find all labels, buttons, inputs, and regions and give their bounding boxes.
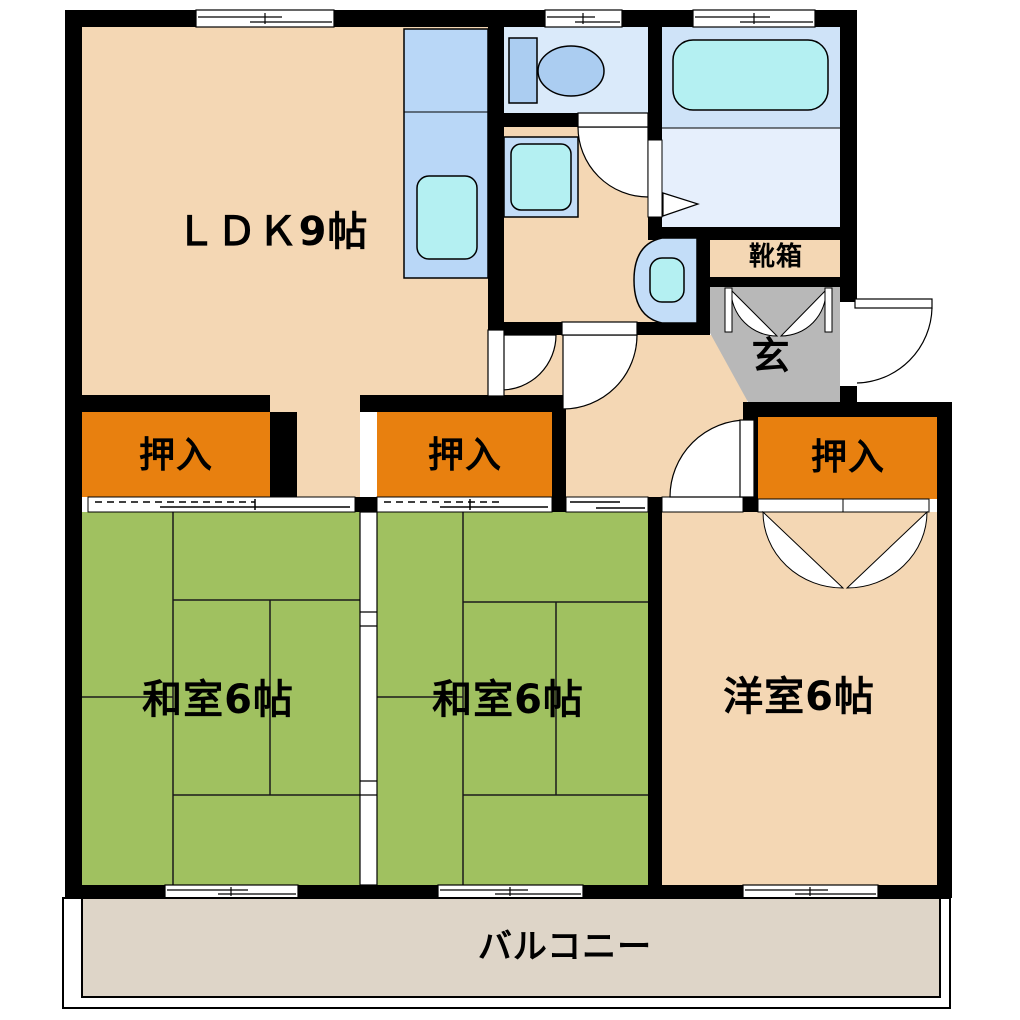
fusuma-below-closet-center (377, 497, 552, 512)
window-washitsu-center-balcony (438, 885, 583, 898)
window-toilet-top (545, 10, 622, 27)
youshitsu-door-opening (662, 497, 743, 512)
genkan-label: 玄 (751, 337, 790, 375)
vanity-icon (504, 137, 578, 217)
sliding-door-hall-to-washitsu (566, 497, 648, 512)
window-bath-top (693, 10, 815, 27)
kitchen-sink-icon (417, 176, 477, 259)
closet-center-label: 押入 (428, 438, 502, 474)
genkan-closet-door-right-panel (825, 288, 832, 332)
washitsu-center-label: 和室6帖 (432, 680, 584, 720)
wall-ldk-bottom-right (360, 395, 566, 412)
youshitsu-label: 洋室6帖 (723, 677, 875, 717)
wall-washroom-bottom-right (637, 322, 710, 335)
bathroom-lower-floor (662, 128, 842, 227)
genkan-closet-door-left-panel (725, 288, 732, 332)
wall-fusuma-top-chunk (355, 497, 377, 512)
wall-right-lower (937, 402, 952, 898)
closet-left-label: 押入 (139, 438, 213, 474)
ldk-door-panel (488, 330, 504, 396)
fusuma-between-washitsu (360, 512, 377, 885)
shoe-cabinet-label: 靴箱 (749, 244, 803, 270)
window-youshitsu-balcony (743, 885, 878, 898)
youshitsu-door-panel (740, 420, 754, 497)
bath-door-panel (648, 140, 662, 217)
wall-ldk-bottom-left (65, 395, 270, 412)
wall-shoe-cabinet-bottom (710, 277, 842, 287)
wall-washitsu-youshitsu-divider (648, 497, 662, 885)
closet-right-label: 押入 (811, 440, 885, 476)
balcony-label: バルコニー (478, 930, 652, 964)
fusuma-below-closet-left (88, 497, 355, 512)
entrance-door-opening (840, 302, 857, 386)
kitchen-counter-icon (404, 29, 488, 278)
wash-basin-icon (634, 238, 697, 323)
floor-plan-drawing (0, 0, 1020, 1020)
washitsu-left-label: 和室6帖 (142, 680, 294, 720)
entrance-door-panel (855, 299, 932, 308)
washroom-door-panel (562, 322, 637, 335)
window-washitsu-left-balcony (165, 885, 298, 898)
toilet-door-panel (578, 113, 648, 127)
wall-closet-right-top (743, 402, 952, 417)
wall-washroom-bottom-left (504, 322, 562, 335)
wall-closet-center-right (552, 395, 566, 512)
ldk-label: ＬＤＫ9帖 (176, 212, 369, 252)
entrance-door-swing (857, 308, 932, 383)
wall-left (65, 10, 82, 898)
floor-plan: ＬＤＫ9帖 和室6帖 和室6帖 洋室6帖 押入 押入 押入 靴箱 玄 バルコニー (0, 0, 1020, 1020)
bathtub-icon (673, 40, 828, 110)
window-ldk-top (196, 10, 334, 27)
